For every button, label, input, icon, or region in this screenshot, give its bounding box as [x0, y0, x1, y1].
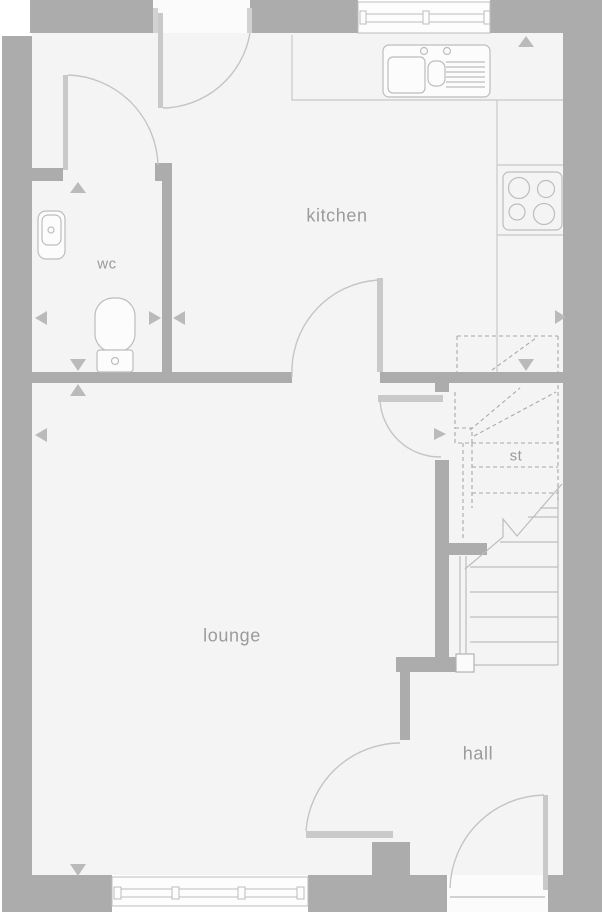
- lounge-window: [112, 877, 308, 906]
- wall-top-3: [490, 0, 563, 33]
- sink-drainer-icon: [383, 45, 490, 97]
- room-label-store: st: [510, 448, 523, 465]
- kitchen-lounge-door-leaf: [377, 278, 383, 372]
- kitchen-hall-door-leaf: [378, 395, 443, 402]
- wall-mid-east: [380, 372, 563, 383]
- rear-door-leaf: [158, 13, 163, 108]
- front-door-opening: [447, 875, 548, 912]
- wall-entry-pier: [372, 842, 410, 875]
- wall-bottom-3: [548, 875, 602, 912]
- kitchen-window: [358, 2, 490, 33]
- wall-stair-stub: [440, 543, 487, 555]
- floorplan: kitchen wc lounge st hall: [0, 0, 602, 912]
- wall-left: [2, 36, 32, 912]
- wall-hall: [435, 460, 449, 657]
- toilet-icon: [95, 298, 135, 372]
- wall-right: [563, 0, 602, 912]
- room-label-wc: wc: [97, 256, 117, 273]
- wc-door-leaf: [63, 75, 68, 170]
- wall-lounge-hall-top: [396, 657, 458, 672]
- wall-lounge-hall: [400, 672, 410, 740]
- wall-bottom-1: [2, 875, 112, 912]
- wall-wc-kitchen: [162, 163, 172, 383]
- wall-top-2: [250, 0, 358, 33]
- stair-newel-post: [456, 654, 474, 672]
- room-label-lounge: lounge: [203, 626, 261, 647]
- rear-door-opening: [153, 0, 250, 33]
- basin-icon: [38, 211, 65, 259]
- lounge-hall-door-leaf: [306, 831, 393, 838]
- front-door-leaf: [543, 795, 548, 890]
- wall-top-1: [30, 0, 153, 33]
- room-label-hall: hall: [463, 744, 493, 765]
- room-label-kitchen: kitchen: [306, 206, 367, 227]
- wall-mid-west: [32, 372, 292, 383]
- wall-wc-stub: [30, 168, 63, 181]
- wall-wc-kitchen-cap: [155, 163, 162, 181]
- wall-bottom-2: [308, 875, 447, 912]
- wall-kitchen-hall-stub: [435, 375, 449, 392]
